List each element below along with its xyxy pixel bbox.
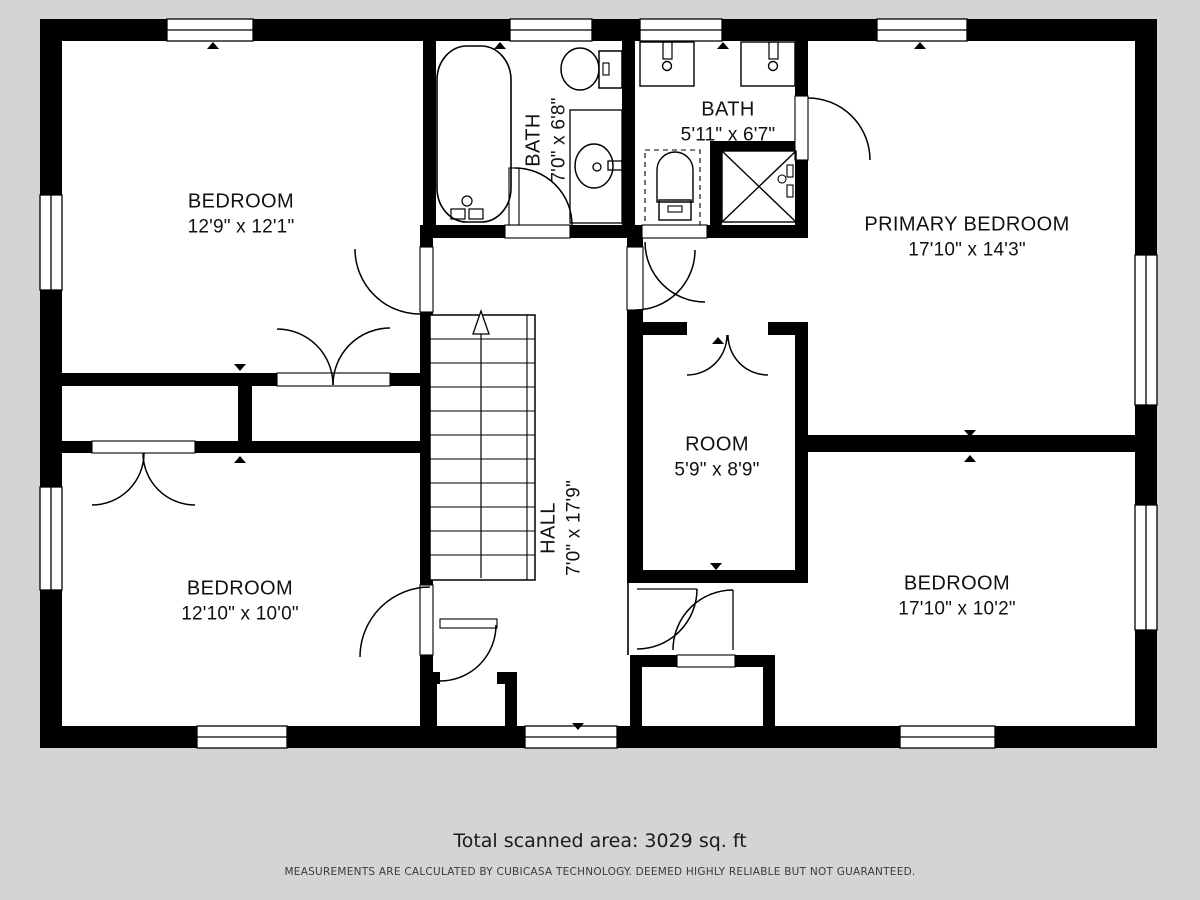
room-dims: 12'10" x 10'0" [181,602,299,627]
room-dims: 17'10" x 10'2" [898,597,1016,622]
floorplan-drawing [0,0,1200,900]
room-name: BEDROOM [188,188,295,214]
label-primary-bedroom: PRIMARY BEDROOM 17'10" x 14'3" [864,211,1069,262]
staircase [430,311,535,580]
room-dims: 5'9" x 8'9" [674,458,759,483]
room-dims: 7'0" x 6'8" [547,97,572,182]
room-name: ROOM [674,431,759,457]
total-scanned-area: Total scanned area: 3029 sq. ft [453,830,746,852]
label-bedroom-top-left: BEDROOM 12'9" x 12'1" [188,188,295,239]
label-room: ROOM 5'9" x 8'9" [674,431,759,482]
measurement-disclaimer: MEASUREMENTS ARE CALCULATED BY CUBICASA … [285,866,916,878]
room-name: BATH [681,96,776,122]
room-dims: 7'0" x 17'9" [562,480,587,576]
room-dims: 5'11" x 6'7" [681,123,776,148]
label-bath-right: BATH 5'11" x 6'7" [681,96,776,147]
room-name: BEDROOM [898,570,1016,596]
label-hall: HALL 7'0" x 17'9" [535,480,586,576]
floorplan-canvas: BEDROOM 12'9" x 12'1" BATH 7'0" x 6'8" B… [0,0,1200,900]
room-dims: 12'9" x 12'1" [188,215,295,240]
room-name: BATH [520,97,546,182]
room-name: PRIMARY BEDROOM [864,211,1069,237]
room-name: BEDROOM [181,575,299,601]
room-name: HALL [535,480,561,576]
label-bedroom-bottom-right: BEDROOM 17'10" x 10'2" [898,570,1016,621]
toilet-left-bath [561,48,622,90]
label-bedroom-bottom-left: BEDROOM 12'10" x 10'0" [181,575,299,626]
room-dims: 17'10" x 14'3" [864,238,1069,263]
label-bath-left: BATH 7'0" x 6'8" [520,97,571,182]
